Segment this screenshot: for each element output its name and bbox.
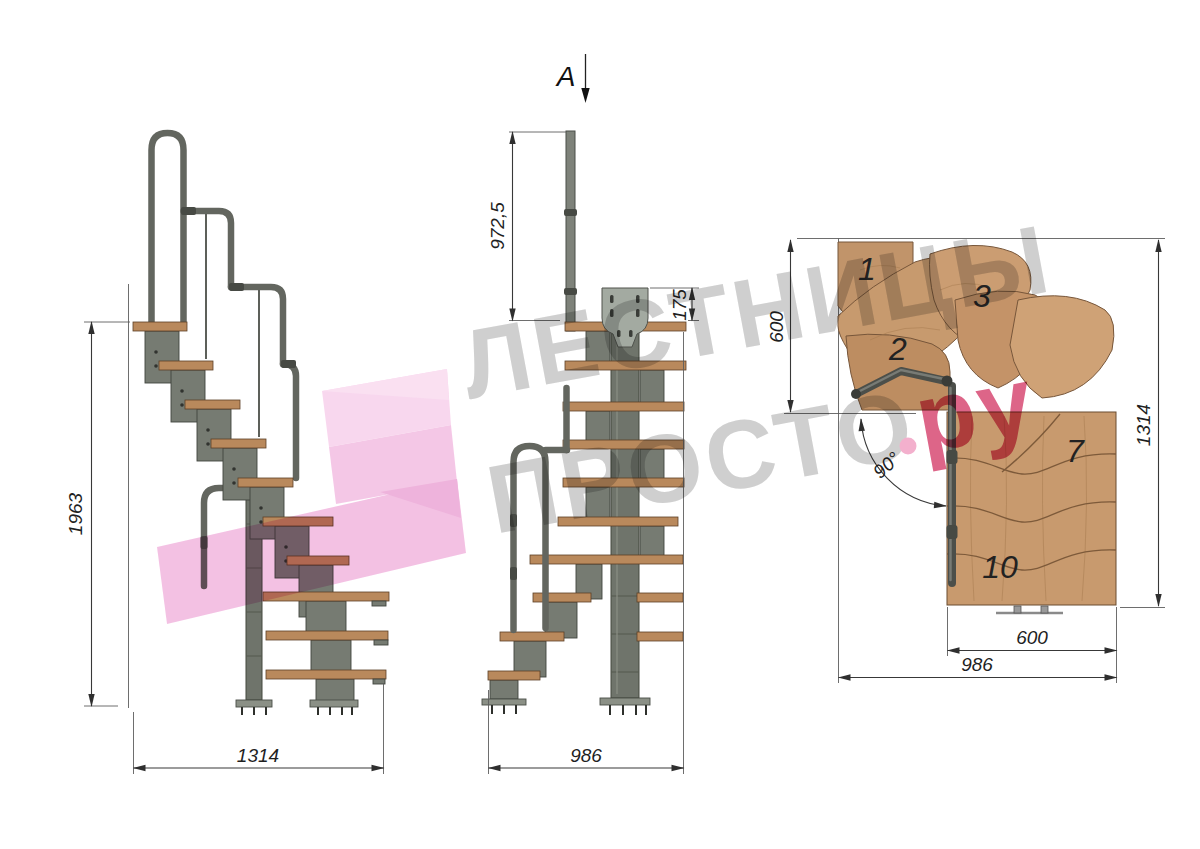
dim-label-986-front: 986 xyxy=(570,745,602,766)
step-number-10: 10 xyxy=(982,549,1018,585)
dim-label-1314-right: 1314 xyxy=(1133,404,1154,446)
tread xyxy=(211,439,266,448)
tread xyxy=(133,322,187,331)
rail-sleeve xyxy=(181,207,196,215)
tread xyxy=(159,361,213,370)
watermark-dot-icon xyxy=(900,438,917,455)
rail-sleeve xyxy=(229,283,244,291)
dim-label-1314: 1314 xyxy=(237,745,279,766)
dim-label-600-bottom: 600 xyxy=(1016,627,1048,648)
tread xyxy=(238,478,293,487)
dim-label-986-bottom: 986 xyxy=(961,654,993,675)
dim-label-972: 972,5 xyxy=(487,202,508,250)
staircase-technical-drawing: 1963 1314 A 972,5 xyxy=(0,0,1200,849)
watermark-suffix: ру xyxy=(907,345,1045,474)
rail-sleeve xyxy=(281,360,296,368)
section-label: A xyxy=(555,61,576,92)
dim-label-1963: 1963 xyxy=(65,492,86,535)
drawing-page: 1963 1314 A 972,5 xyxy=(0,0,1200,849)
tread xyxy=(185,400,240,409)
step-number-7: 7 xyxy=(1066,433,1085,469)
